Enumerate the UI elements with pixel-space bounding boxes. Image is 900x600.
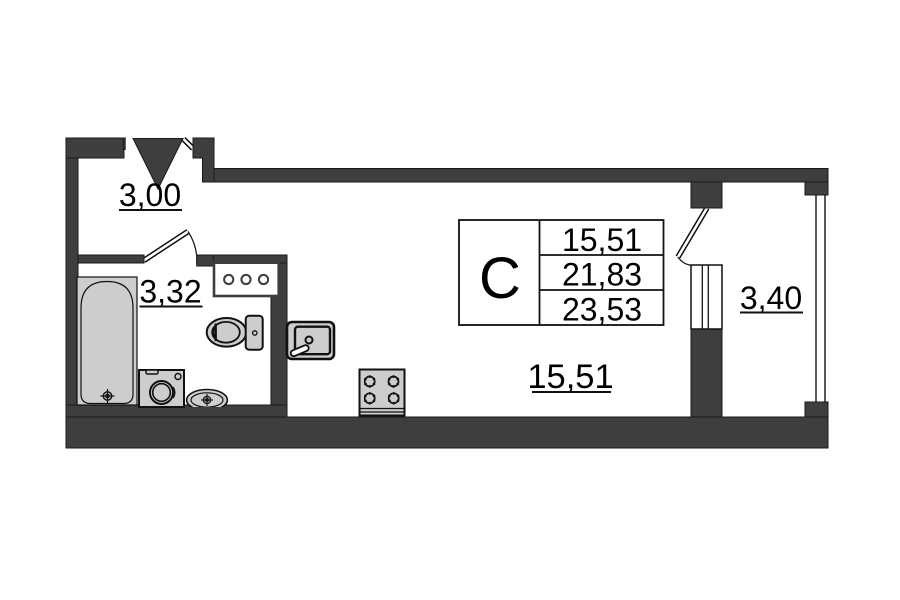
svg-text:15,51: 15,51 (527, 358, 613, 396)
svg-text:3,32: 3,32 (139, 274, 201, 310)
svg-text:21,83: 21,83 (562, 257, 642, 293)
svg-text:15,51: 15,51 (562, 222, 642, 258)
svg-text:С: С (479, 246, 521, 311)
svg-text:3,40: 3,40 (740, 280, 802, 316)
svg-text:23,53: 23,53 (562, 292, 642, 328)
svg-text:3,00: 3,00 (119, 177, 181, 213)
